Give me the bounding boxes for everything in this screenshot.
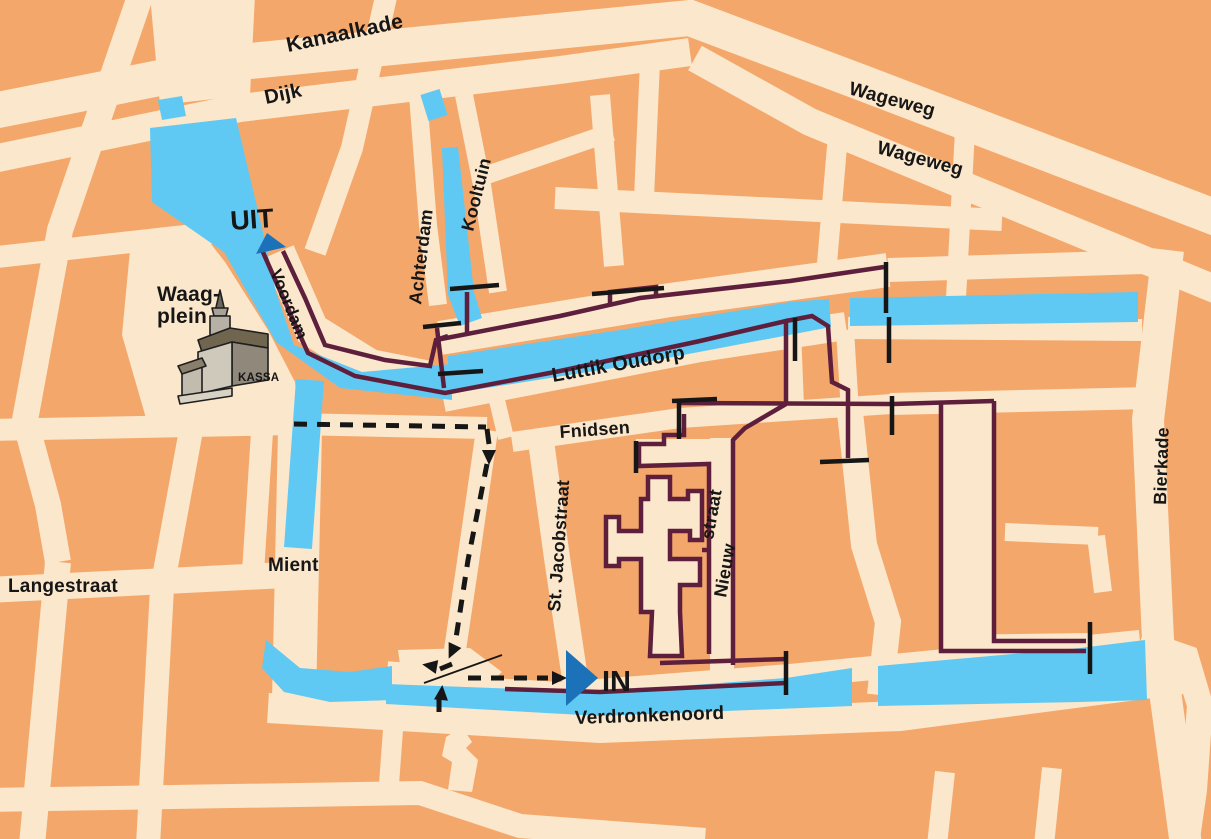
bridge-bar-8 — [820, 460, 869, 462]
quay-luttik-south-east — [848, 328, 1142, 330]
street-label-langestraat: Langestraat — [8, 576, 118, 597]
place-label-waagplein-1: Waag- — [157, 283, 220, 306]
place-label-kassa: KASSA — [238, 372, 279, 384]
bridge-bar-12 — [438, 371, 483, 374]
waag-spire-base — [212, 308, 228, 316]
waag-wall-light — [198, 342, 232, 394]
canal-voordam-head — [158, 96, 186, 120]
street-north-vert-1 — [644, 62, 650, 198]
street-junction-topleft — [150, 0, 255, 105]
map-canvas: UIT IN Kanaalkade Dijk Wageweg Wageweg K… — [0, 0, 1211, 839]
walk-route-west — [294, 424, 486, 427]
street-bottomright-vert-2 — [937, 772, 945, 839]
uit-label: UIT — [229, 203, 275, 236]
street-north-vert-4 — [956, 112, 966, 298]
street-north-vert-3 — [826, 135, 838, 275]
quay-luttik-north-east — [888, 262, 1145, 270]
canal-kooltuin-head — [430, 92, 438, 118]
street-label-mient: Mient — [268, 555, 319, 576]
street-north-vert-2 — [600, 95, 614, 266]
in-label: IN — [602, 666, 631, 698]
canal-luttik-oudorp-east — [850, 292, 1138, 326]
canal-route-map: UIT IN Kanaalkade Dijk Wageweg Wageweg K… — [0, 0, 1211, 839]
street-bottomright-vert-1 — [1044, 768, 1052, 839]
walk-route-corner — [487, 429, 489, 444]
street-label-bierkade: Bierkade — [1150, 427, 1173, 505]
place-label-waagplein-2: plein — [157, 305, 207, 328]
canal-mient-strip — [298, 380, 310, 548]
